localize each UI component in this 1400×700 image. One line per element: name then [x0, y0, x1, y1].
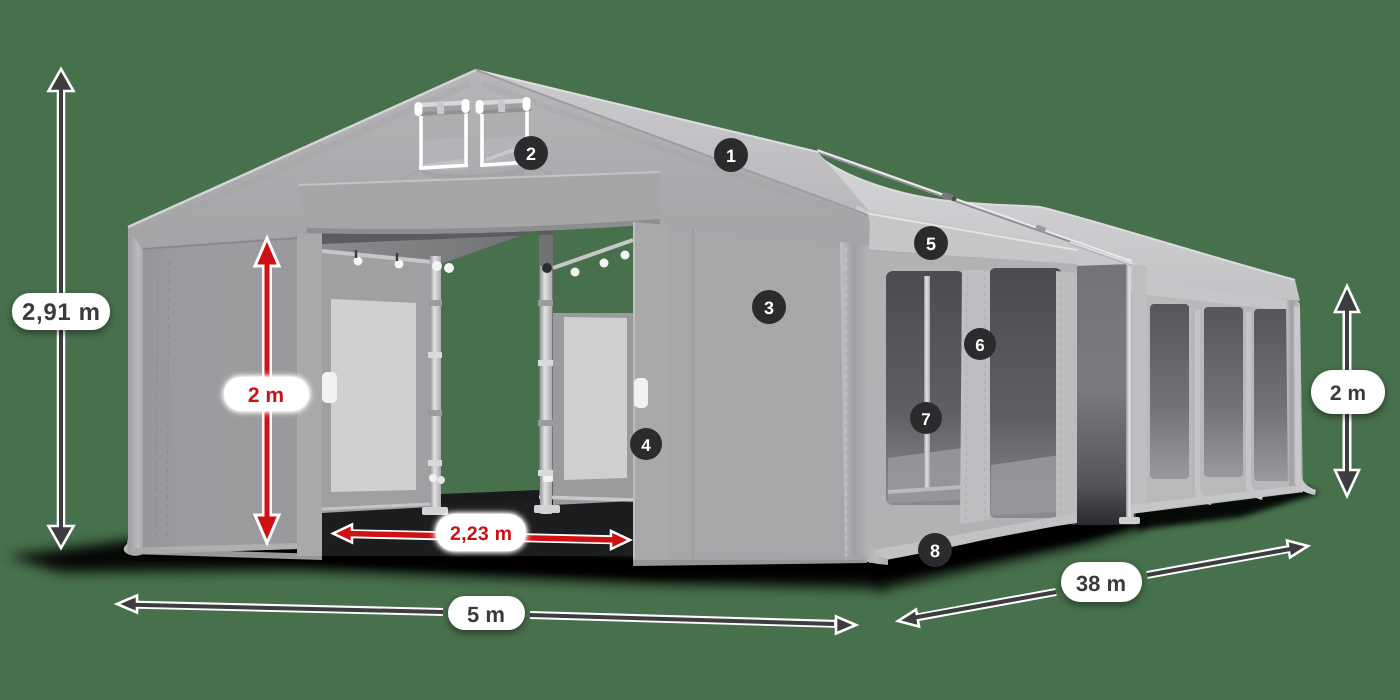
svg-text:3: 3 [764, 298, 774, 318]
svg-text:2: 2 [526, 144, 536, 164]
svg-text:6: 6 [975, 336, 985, 355]
svg-text:2,91 m: 2,91 m [22, 299, 100, 326]
svg-text:2,23 m: 2,23 m [450, 523, 512, 545]
svg-text:4: 4 [641, 436, 651, 455]
svg-text:8: 8 [930, 541, 940, 561]
svg-text:1: 1 [726, 146, 736, 166]
svg-text:2 m: 2 m [248, 384, 284, 407]
svg-text:5: 5 [926, 234, 936, 254]
svg-text:2 m: 2 m [1330, 382, 1366, 405]
svg-text:5 m: 5 m [467, 602, 505, 627]
svg-text:7: 7 [921, 410, 931, 429]
svg-text:38 m: 38 m [1076, 571, 1126, 596]
